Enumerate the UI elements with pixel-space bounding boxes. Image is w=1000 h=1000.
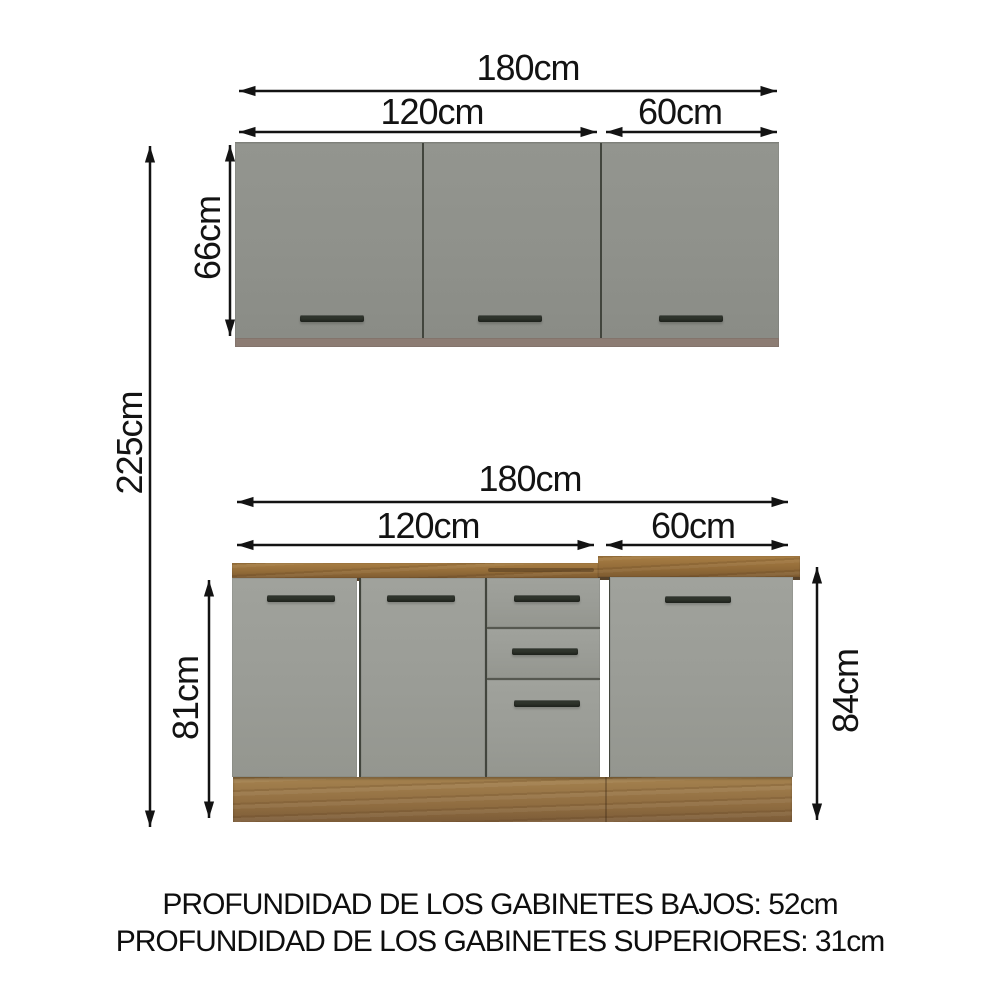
label-lower-total-width: 180cm bbox=[478, 461, 581, 497]
drawer-stack bbox=[485, 578, 598, 777]
drawer-handle bbox=[514, 595, 580, 602]
kitchen-dimension-diagram: 180cm 120cm 60cm 180cm 120cm 60cm 225cm … bbox=[0, 0, 1000, 1000]
drawer-handle bbox=[514, 700, 580, 707]
upper-cabinet-doors bbox=[235, 142, 779, 339]
lower-door-2 bbox=[359, 578, 485, 777]
label-lower-right-height: 84cm bbox=[828, 649, 864, 733]
upper-cabinet bbox=[235, 142, 779, 347]
drawer-3 bbox=[487, 678, 600, 777]
upper-door-divider-2 bbox=[600, 143, 602, 339]
door-handle bbox=[300, 315, 364, 322]
door-handle bbox=[659, 315, 723, 322]
toe-kick-seam bbox=[605, 777, 607, 822]
label-upper-total-width: 180cm bbox=[476, 50, 579, 86]
drawer-1 bbox=[487, 578, 600, 627]
door-handle bbox=[478, 315, 542, 322]
countertop-groove bbox=[488, 568, 594, 572]
label-upper-left-width: 120cm bbox=[380, 94, 483, 130]
drawer-2 bbox=[487, 627, 600, 678]
door-handle bbox=[267, 595, 335, 602]
lower-right-door bbox=[609, 577, 793, 777]
label-lower-left-width: 120cm bbox=[376, 508, 479, 544]
door-handle bbox=[665, 596, 731, 603]
upper-cabinet-bottom-panel bbox=[235, 338, 779, 347]
upper-door-divider-1 bbox=[422, 143, 424, 339]
label-upper-right-width: 60cm bbox=[638, 94, 722, 130]
label-overall-height: 225cm bbox=[112, 391, 148, 494]
toe-kick bbox=[233, 777, 792, 822]
label-upper-height: 66cm bbox=[190, 196, 226, 280]
label-lower-left-height: 81cm bbox=[168, 656, 204, 740]
depth-notes: PROFUNDIDAD DE LOS GABINETES BAJOS: 52cm… bbox=[0, 886, 1000, 960]
depth-note-upper-cabinets: PROFUNDIDAD DE LOS GABINETES SUPERIORES:… bbox=[0, 923, 1000, 960]
drawer-handle bbox=[512, 648, 578, 655]
depth-note-lower-cabinets: PROFUNDIDAD DE LOS GABINETES BAJOS: 52cm bbox=[0, 886, 1000, 923]
lower-door-1 bbox=[232, 578, 357, 777]
label-lower-right-width: 60cm bbox=[651, 508, 735, 544]
door-handle bbox=[387, 595, 455, 602]
